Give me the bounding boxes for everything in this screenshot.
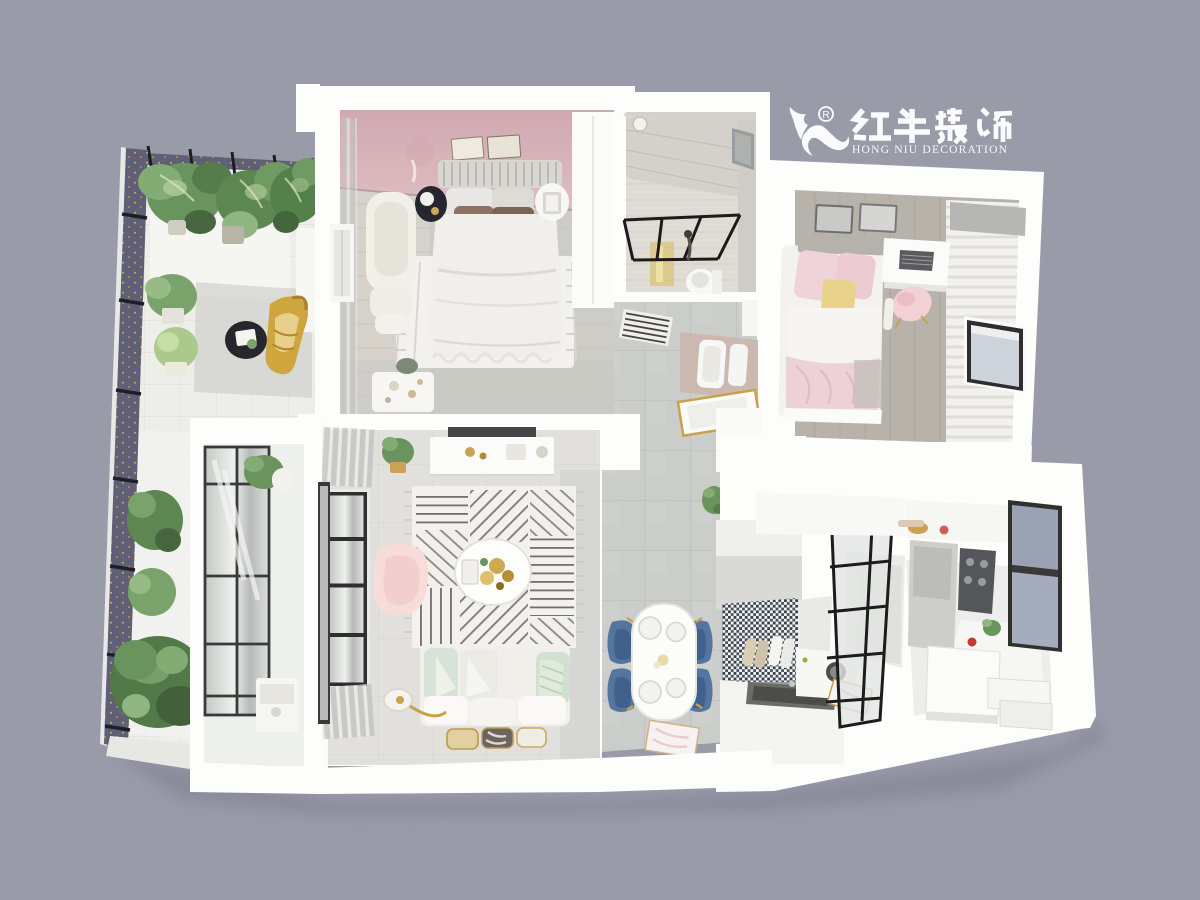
svg-text:R: R (822, 110, 829, 121)
svg-text:HONG NIU DECORATION: HONG NIU DECORATION (852, 143, 1009, 156)
